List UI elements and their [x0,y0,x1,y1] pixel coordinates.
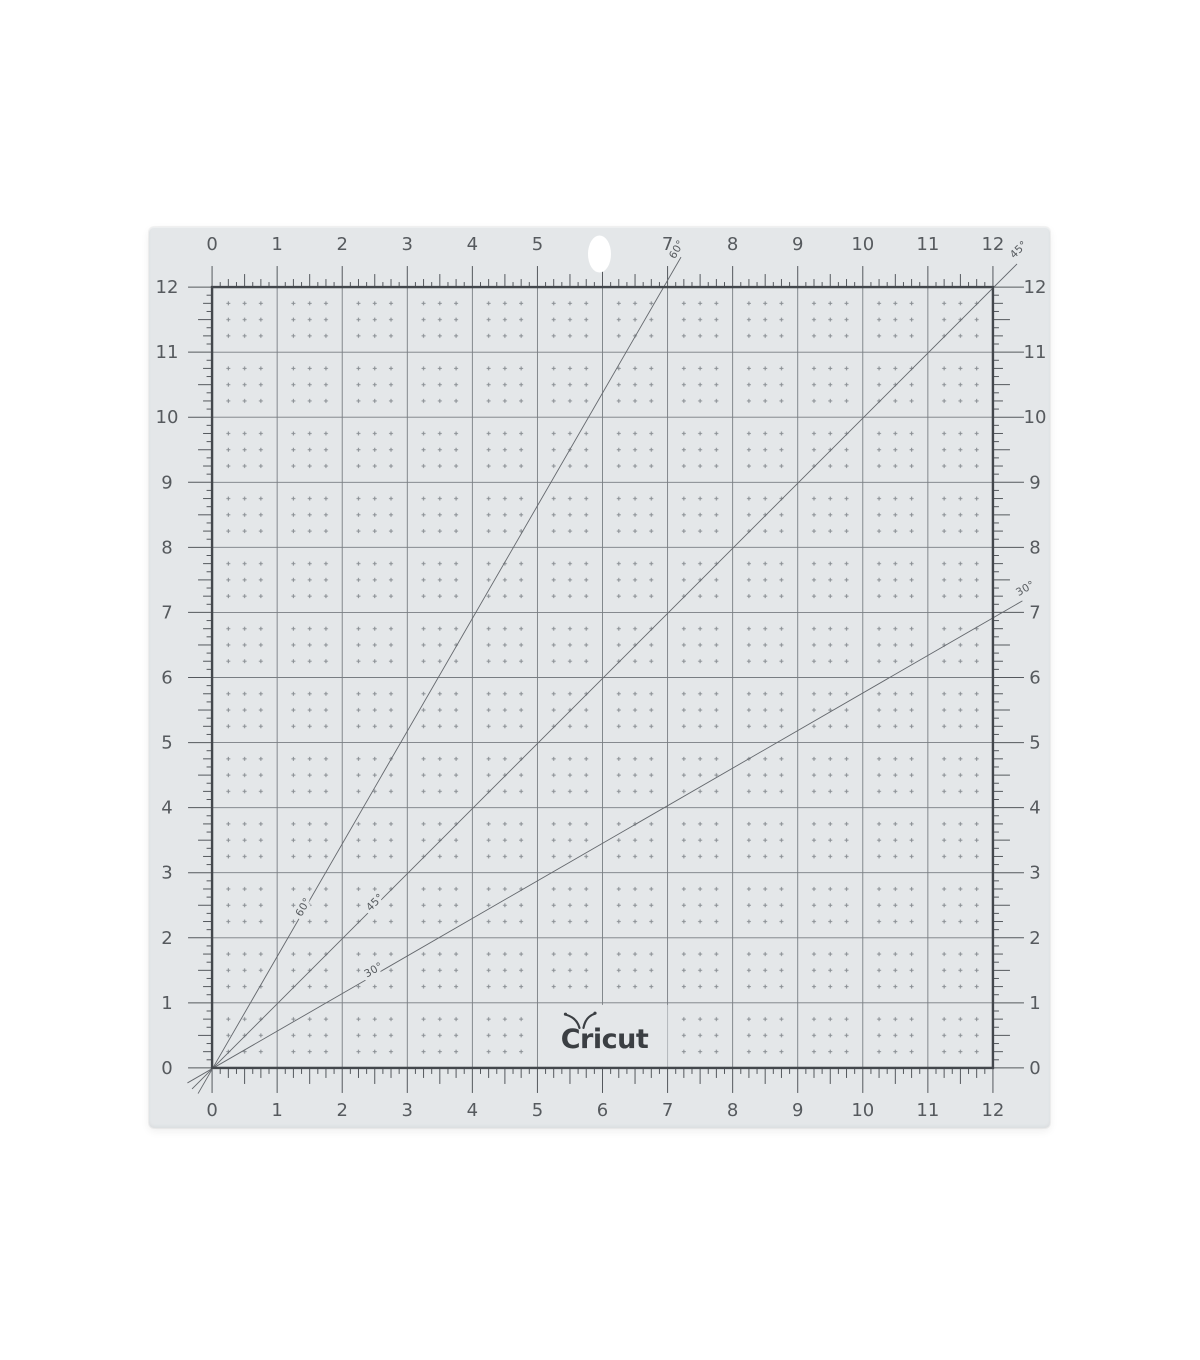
ruler-number: 4 [161,798,172,819]
mat-graphic: 012345789101112 0123456789101112 1211109… [149,227,1050,1128]
cricut-logo: Cricut [541,1005,667,1067]
ruler-number: 7 [161,602,172,623]
ruler-number: 10 [156,407,179,428]
ruler-number: 12 [981,234,1004,255]
ruler-number: 4 [467,1100,478,1121]
ruler-number: 4 [1029,798,1040,819]
ruler-number: 8 [727,1100,738,1121]
ruler-number: 10 [1024,407,1047,428]
ruler-number: 2 [1029,928,1040,949]
logo-antenna-tip-right [593,1012,596,1015]
ruler-number: 1 [1029,993,1040,1014]
ruler-number: 12 [981,1100,1004,1121]
ruler-number: 1 [161,993,172,1014]
logo-antenna-tip-left [564,1013,567,1016]
ruler-number: 11 [156,342,179,363]
ruler-number: 1 [271,234,282,255]
ruler-number: 0 [161,1058,172,1079]
ruler-number: 3 [402,1100,413,1121]
ruler-number: 3 [402,234,413,255]
ruler-number: 5 [161,733,172,754]
ruler-number: 7 [1029,602,1040,623]
ruler-number: 0 [206,1100,217,1121]
ruler-number: 8 [161,537,172,558]
ruler-number: 6 [597,1100,608,1121]
ruler-number: 9 [161,472,172,493]
ruler-number: 4 [467,234,478,255]
ruler-number: 5 [532,1100,543,1121]
ruler-number: 10 [851,1100,874,1121]
ruler-number: 11 [916,234,939,255]
angle-label-30-right: 30° [1014,579,1037,599]
ruler-number: 11 [1024,342,1047,363]
hanging-hole [588,236,611,273]
ruler-numbers-bottom: 0123456789101112 [206,1100,1004,1121]
ruler-number: 9 [792,1100,803,1121]
ruler-number: 3 [161,863,172,884]
logo-text: Cricut [561,1024,649,1055]
cutting-mat: 012345789101112 0123456789101112 1211109… [149,227,1050,1128]
angle-label-45-top-right: 45° [1008,239,1030,261]
ruler-number: 2 [336,1100,347,1121]
ruler-number: 0 [1029,1058,1040,1079]
ruler-number: 1 [271,1100,282,1121]
ruler-number: 8 [727,234,738,255]
ruler-number: 2 [336,234,347,255]
ruler-number: 0 [206,234,217,255]
ruler-number: 6 [161,668,172,689]
ruler-number: 12 [156,277,179,298]
ruler-number: 8 [1029,537,1040,558]
ruler-number: 9 [1029,472,1040,493]
ruler-number: 9 [792,234,803,255]
ruler-number: 12 [1024,277,1047,298]
ruler-number: 6 [1029,668,1040,689]
ruler-number: 5 [1029,733,1040,754]
ruler-numbers-right: 1211109876543210 [1024,277,1047,1079]
ruler-numbers-left: 1211109876543210 [156,277,179,1079]
ruler-number: 10 [851,234,874,255]
ruler-number: 7 [662,1100,673,1121]
ruler-number: 2 [161,928,172,949]
ruler-number: 5 [532,234,543,255]
ruler-number: 3 [1029,863,1040,884]
ruler-number: 11 [916,1100,939,1121]
